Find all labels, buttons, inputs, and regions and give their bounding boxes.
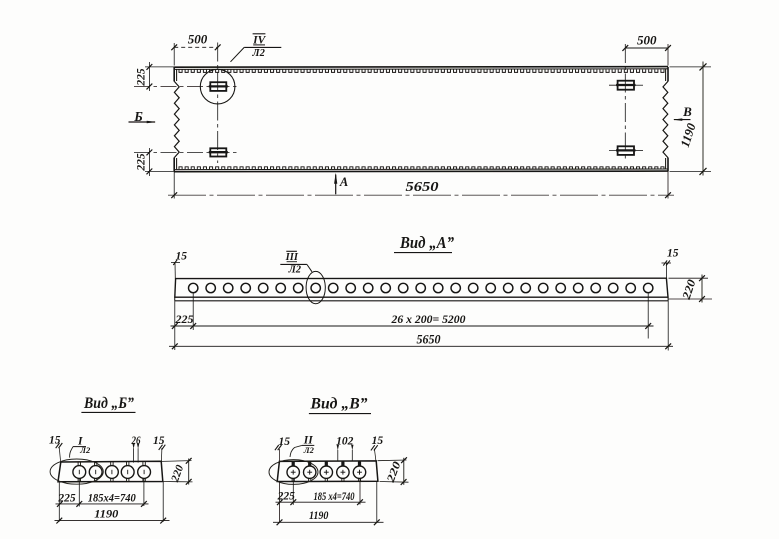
svg-text:Вид „Б”: Вид „Б” [83, 395, 134, 412]
svg-text:1190: 1190 [94, 506, 118, 520]
svg-text:15: 15 [176, 251, 188, 263]
svg-text:185x4=740: 185x4=740 [88, 493, 136, 505]
svg-text:225: 225 [175, 312, 194, 326]
svg-text:26 x 200= 5200: 26 x 200= 5200 [391, 312, 466, 326]
svg-text:Вид „А”: Вид „А” [399, 233, 454, 252]
svg-text:225: 225 [135, 68, 147, 87]
svg-text:15: 15 [153, 435, 165, 447]
svg-text:Л2: Л2 [288, 264, 302, 275]
svg-text:225: 225 [135, 153, 147, 172]
svg-text:225: 225 [277, 491, 296, 503]
svg-text:1190: 1190 [309, 508, 329, 522]
svg-text:5650: 5650 [406, 180, 439, 195]
svg-text:Л2: Л2 [251, 48, 265, 59]
svg-text:Л2: Л2 [303, 445, 315, 455]
svg-text:15: 15 [667, 247, 679, 259]
svg-text:225: 225 [57, 492, 76, 504]
svg-text:5650: 5650 [417, 331, 441, 346]
svg-text:500: 500 [637, 32, 657, 47]
svg-text:185 x4=740: 185 x4=740 [314, 491, 355, 503]
svg-text:15: 15 [49, 435, 61, 447]
svg-text:26: 26 [131, 435, 141, 447]
svg-text:Л2: Л2 [79, 445, 91, 455]
svg-text:В: В [682, 104, 692, 119]
svg-text:Вид „В”: Вид „В” [309, 396, 367, 413]
svg-text:А: А [339, 175, 348, 189]
svg-text:500: 500 [188, 32, 208, 47]
